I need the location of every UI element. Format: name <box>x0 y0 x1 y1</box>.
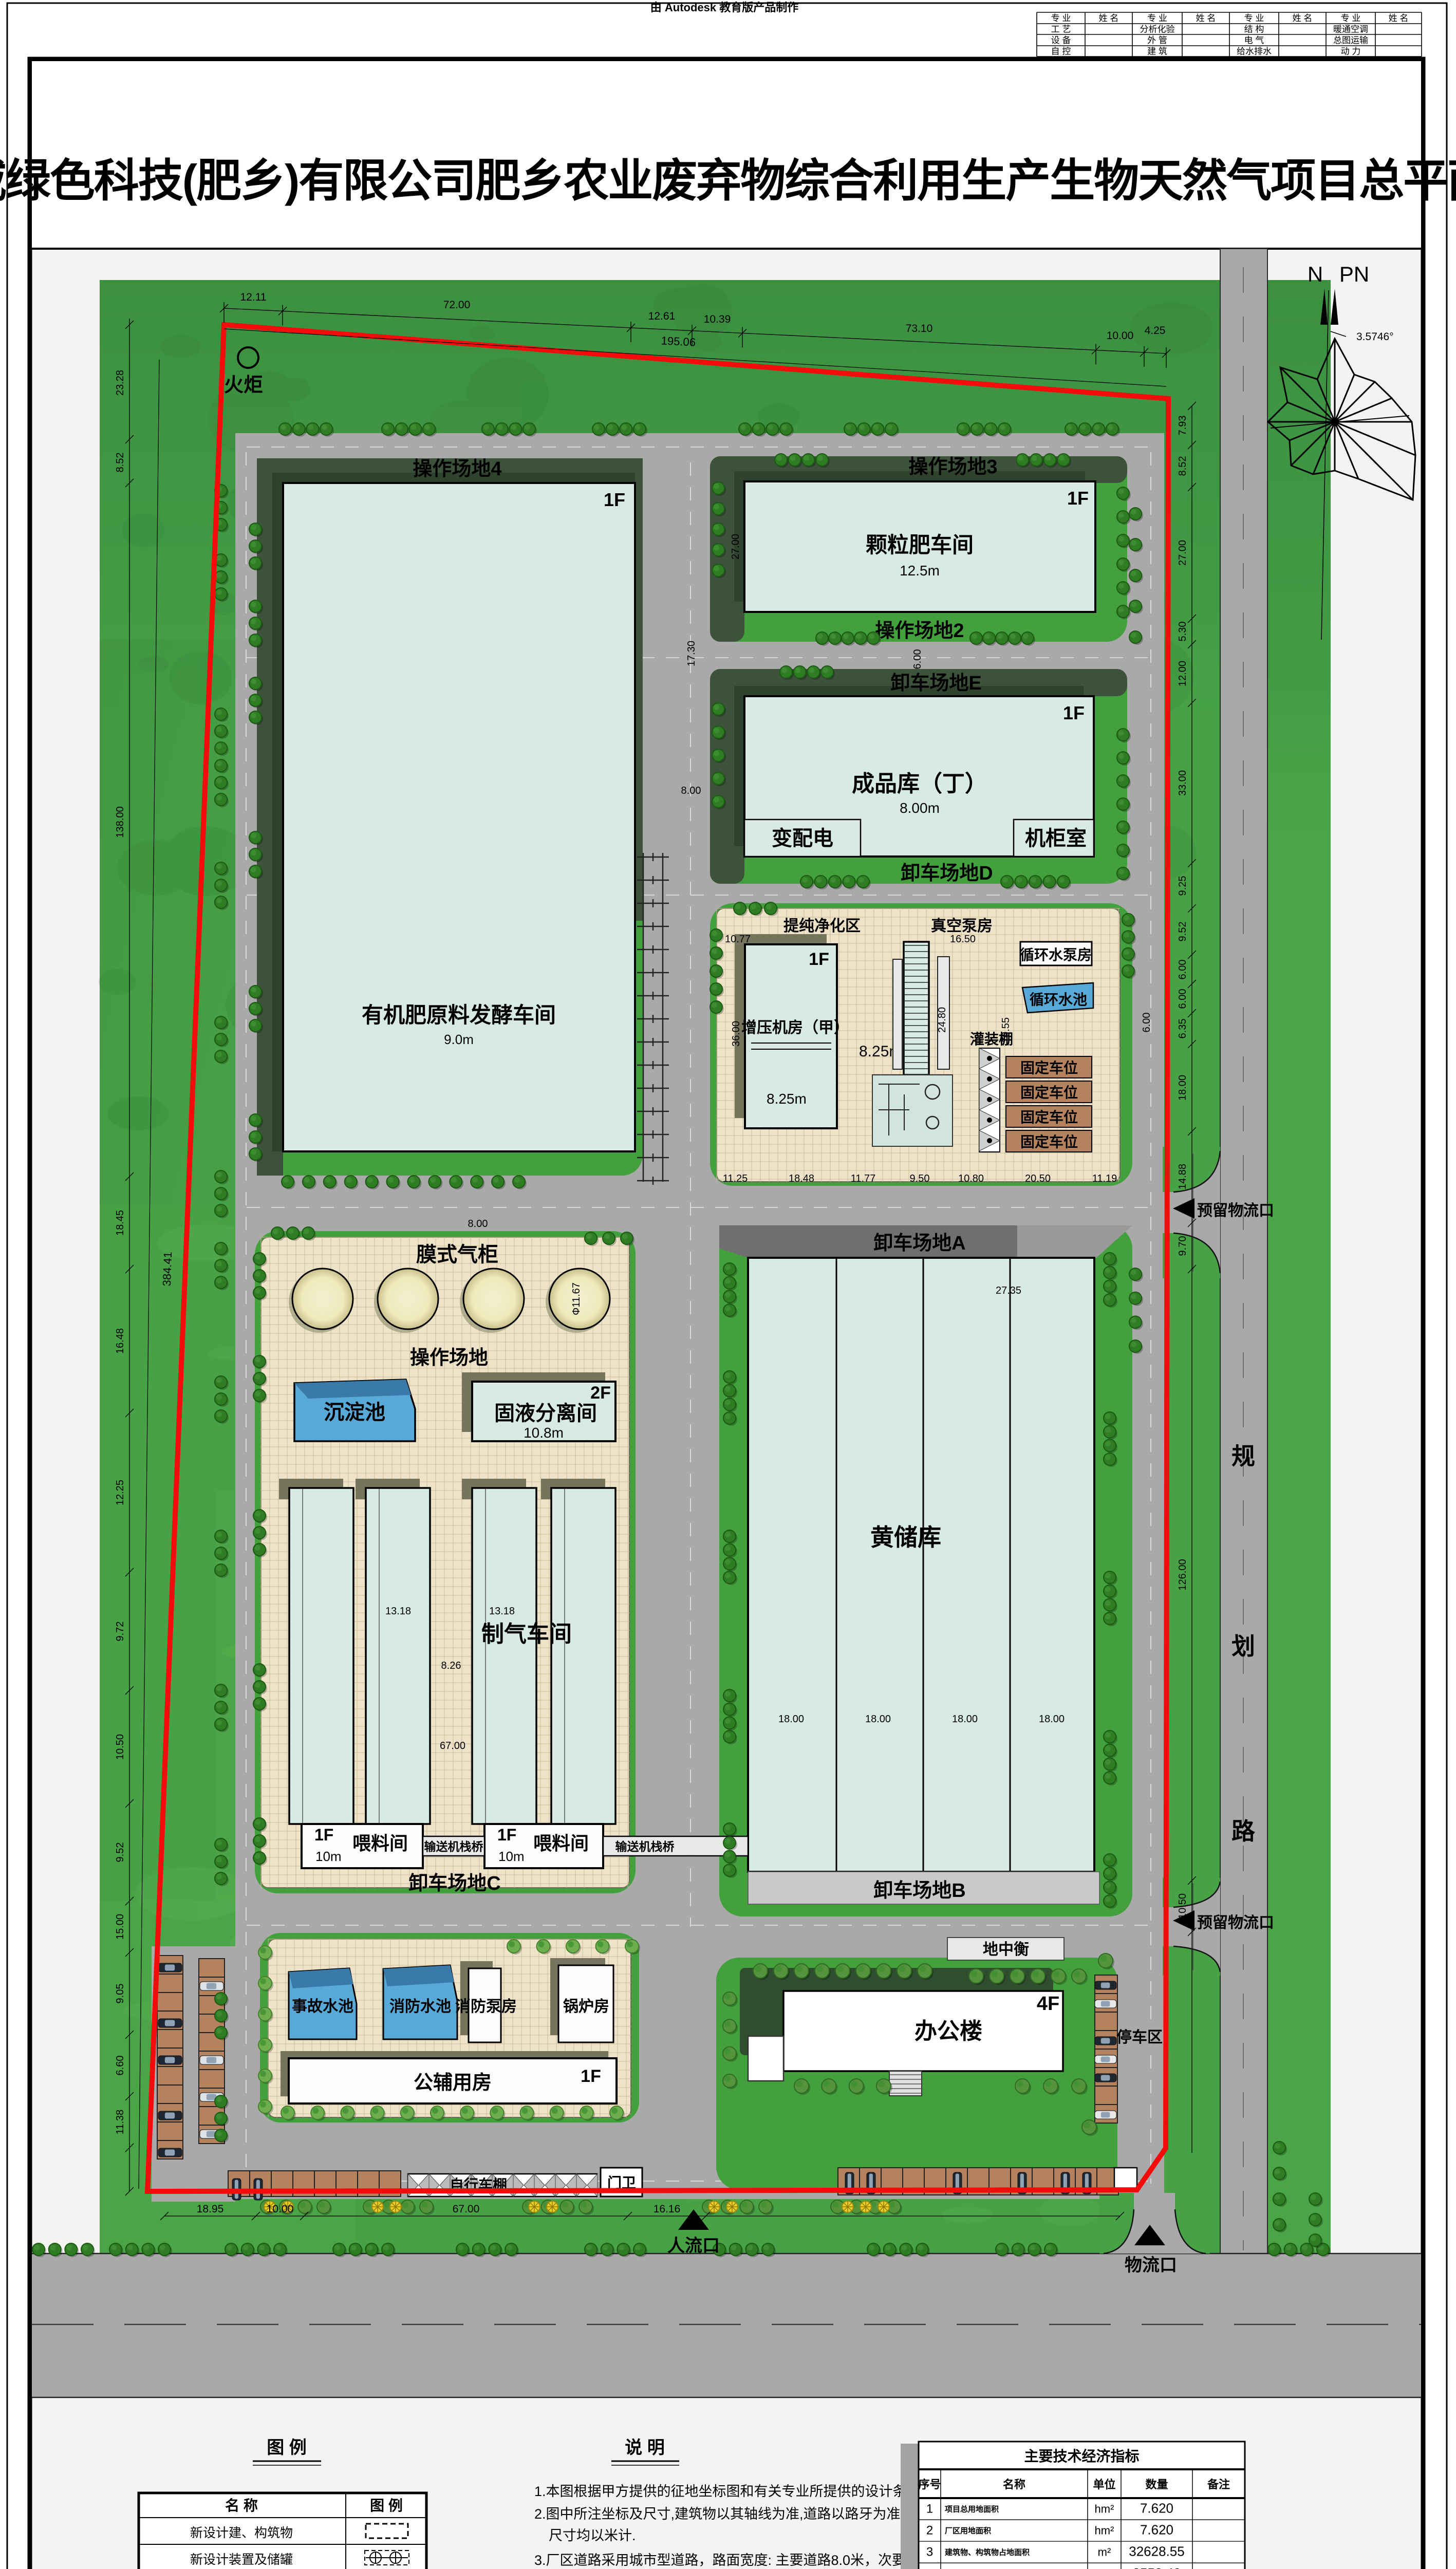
svg-text:m²: m² <box>1098 2546 1111 2559</box>
svg-text:锅炉房: 锅炉房 <box>563 1998 609 2015</box>
svg-text:暖通空调: 暖通空调 <box>1333 25 1368 34</box>
svg-text:序号: 序号 <box>918 2478 941 2491</box>
svg-text:13.18: 13.18 <box>385 1606 411 1617</box>
svg-text:固定车位: 固定车位 <box>1020 1109 1078 1125</box>
svg-text:设 备: 设 备 <box>1051 35 1071 45</box>
svg-text:18.45: 18.45 <box>115 1210 126 1236</box>
svg-text:13.18: 13.18 <box>489 1606 515 1617</box>
svg-text:17.30: 17.30 <box>686 641 697 666</box>
svg-text:16.50: 16.50 <box>950 934 976 945</box>
svg-text:循环水泵房: 循环水泵房 <box>1020 946 1092 963</box>
svg-text:变配电: 变配电 <box>772 827 833 850</box>
svg-text:卸车场地A: 卸车场地A <box>873 1233 965 1254</box>
svg-text:1F: 1F <box>314 1826 333 1844</box>
svg-text:36.00: 36.00 <box>731 1021 742 1047</box>
svg-text:6.35: 6.35 <box>1177 1019 1188 1039</box>
svg-text:卸车场地B: 卸车场地B <box>873 1880 965 1902</box>
svg-text:8.52: 8.52 <box>1177 456 1188 476</box>
svg-text:名 称: 名 称 <box>225 2498 258 2514</box>
svg-text:数量: 数量 <box>1145 2478 1168 2491</box>
svg-text:外 管: 外 管 <box>1147 35 1167 45</box>
svg-text:6.60: 6.60 <box>115 2056 126 2076</box>
svg-text:建筑物、构筑物占地面积: 建筑物、构筑物占地面积 <box>945 2548 1030 2557</box>
svg-text:固液分离间: 固液分离间 <box>494 1402 597 1425</box>
svg-text:hm²: hm² <box>1095 2524 1114 2537</box>
svg-text:10.80: 10.80 <box>958 1173 984 1184</box>
svg-text:停车区: 停车区 <box>1116 2028 1163 2046</box>
svg-text:物流口: 物流口 <box>1125 2256 1177 2275</box>
svg-text:10.00: 10.00 <box>267 2203 294 2215</box>
svg-text:PN: PN <box>1339 262 1369 286</box>
svg-text:5.30: 5.30 <box>1177 622 1188 642</box>
svg-text:12.61: 12.61 <box>648 310 676 322</box>
svg-text:9.70: 9.70 <box>1177 1236 1188 1256</box>
svg-text:N: N <box>1308 262 1323 286</box>
svg-text:操作场地4: 操作场地4 <box>413 458 501 480</box>
svg-text:15.00: 15.00 <box>115 1914 126 1940</box>
svg-text:12.5m: 12.5m <box>900 563 940 579</box>
svg-text:2F: 2F <box>590 1383 611 1403</box>
svg-text:10.39: 10.39 <box>704 313 731 325</box>
svg-text:8.26: 8.26 <box>441 1660 461 1671</box>
svg-text:3553.40: 3553.40 <box>1133 2565 1181 2569</box>
svg-text:19.55: 19.55 <box>1000 1017 1012 1043</box>
svg-text:固定车位: 固定车位 <box>1020 1084 1078 1101</box>
svg-text:制气车间: 制气车间 <box>481 1622 572 1647</box>
svg-text:6.00: 6.00 <box>912 649 923 669</box>
svg-text:消防泵房: 消防泵房 <box>455 1998 517 2015</box>
svg-text:Ф11.67: Ф11.67 <box>571 1282 582 1315</box>
svg-text:1F: 1F <box>581 2067 601 2086</box>
svg-text:10.50: 10.50 <box>1177 1893 1188 1919</box>
svg-text:卸车场地C: 卸车场地C <box>408 1873 500 1894</box>
svg-text:18.95: 18.95 <box>197 2203 224 2215</box>
svg-text:8.00: 8.00 <box>681 785 701 796</box>
svg-text:9.52: 9.52 <box>1177 922 1188 942</box>
svg-text:16.16: 16.16 <box>654 2203 681 2215</box>
svg-text:消防水池: 消防水池 <box>389 1998 451 2015</box>
svg-text:7.93: 7.93 <box>1177 416 1188 436</box>
svg-text:工 艺: 工 艺 <box>1051 25 1071 34</box>
svg-text:11.77: 11.77 <box>851 1173 876 1184</box>
svg-text:姓 名: 姓 名 <box>1389 13 1409 23</box>
svg-text:专 业: 专 业 <box>1341 13 1361 23</box>
svg-text:输送机栈桥: 输送机栈桥 <box>615 1840 675 1853</box>
svg-text:划: 划 <box>1231 1633 1255 1660</box>
svg-text:6.00: 6.00 <box>1177 989 1188 1009</box>
svg-text:动 力: 动 力 <box>1341 47 1361 57</box>
svg-text:1F: 1F <box>1067 488 1089 509</box>
svg-text:8.00: 8.00 <box>468 1218 488 1230</box>
svg-text:说 明: 说 明 <box>625 2438 664 2458</box>
svg-text:项目总用地面积: 项目总用地面积 <box>945 2505 999 2514</box>
svg-text:喂料间: 喂料间 <box>352 1833 408 1854</box>
svg-text:电 气: 电 气 <box>1244 35 1264 45</box>
svg-text:11.25: 11.25 <box>723 1173 748 1184</box>
svg-text:hm²: hm² <box>1095 2503 1114 2516</box>
svg-text:3.5746°: 3.5746° <box>1356 331 1394 343</box>
svg-text:预留物流口: 预留物流口 <box>1197 1914 1274 1931</box>
svg-text:10.00: 10.00 <box>1107 330 1134 342</box>
svg-text:24.80: 24.80 <box>937 1007 948 1033</box>
svg-text:27.00: 27.00 <box>1177 540 1188 566</box>
svg-text:操作场地3: 操作场地3 <box>908 456 997 478</box>
svg-text:路: 路 <box>1231 1818 1256 1845</box>
svg-text:人流口: 人流口 <box>667 2236 720 2256</box>
svg-text:8.00m: 8.00m <box>900 800 940 816</box>
svg-text:操作场地: 操作场地 <box>410 1347 488 1369</box>
svg-text:规: 规 <box>1231 1443 1255 1469</box>
svg-text:成品库（丁）: 成品库（丁） <box>852 771 987 796</box>
svg-text:专 业: 专 业 <box>1244 13 1264 23</box>
svg-text:预留物流口: 预留物流口 <box>1197 1202 1274 1219</box>
svg-text:主要技术经济指标: 主要技术经济指标 <box>1024 2448 1139 2464</box>
svg-text:膜式气柜: 膜式气柜 <box>416 1243 498 1266</box>
svg-text:自 控: 自 控 <box>1051 47 1071 57</box>
svg-text:姓 名: 姓 名 <box>1293 13 1313 23</box>
svg-text:尺寸均以米计.: 尺寸均以米计. <box>549 2528 636 2543</box>
svg-text:图 例: 图 例 <box>370 2498 403 2514</box>
svg-text:16.48: 16.48 <box>115 1328 126 1354</box>
svg-text:给水排水: 给水排水 <box>1237 47 1272 57</box>
svg-text:10m: 10m <box>498 1849 525 1864</box>
svg-text:姓 名: 姓 名 <box>1099 13 1119 23</box>
svg-text:4F: 4F <box>1037 1993 1059 2015</box>
svg-text:机柜室: 机柜室 <box>1025 827 1087 850</box>
svg-text:10.8m: 10.8m <box>524 1425 564 1441</box>
svg-text:循环水池: 循环水池 <box>1030 992 1087 1008</box>
svg-text:9.52: 9.52 <box>115 1842 126 1863</box>
svg-text:姓 名: 姓 名 <box>1196 13 1216 23</box>
svg-text:分析化验: 分析化验 <box>1140 25 1175 34</box>
svg-text:单位: 单位 <box>1093 2478 1115 2491</box>
svg-text:专 业: 专 业 <box>1051 13 1071 23</box>
svg-text:固定车位: 固定车位 <box>1020 1059 1078 1076</box>
svg-text:输送机栈桥: 输送机栈桥 <box>424 1840 484 1853</box>
svg-text:总图运输: 总图运输 <box>1333 35 1368 45</box>
svg-text:6.00: 6.00 <box>1141 1013 1152 1033</box>
svg-text:14.88: 14.88 <box>1177 1164 1188 1189</box>
svg-text:73.10: 73.10 <box>906 323 933 334</box>
svg-text:卸车场地E: 卸车场地E <box>890 673 981 694</box>
svg-text:备注: 备注 <box>1207 2478 1230 2491</box>
svg-text:2: 2 <box>926 2524 933 2538</box>
svg-text:11.19: 11.19 <box>1092 1173 1117 1184</box>
svg-text:27.35: 27.35 <box>996 1285 1021 1296</box>
svg-text:138.00: 138.00 <box>115 806 126 837</box>
svg-text:7.620: 7.620 <box>1140 2522 1173 2538</box>
svg-text:建 筑: 建 筑 <box>1147 47 1167 57</box>
svg-text:7.620: 7.620 <box>1140 2501 1173 2516</box>
svg-text:18.00: 18.00 <box>778 1714 804 1725</box>
svg-text:8.25m: 8.25m <box>767 1091 807 1107</box>
svg-text:3: 3 <box>926 2545 933 2559</box>
svg-text:1F: 1F <box>1063 702 1085 723</box>
svg-text:33.00: 33.00 <box>1177 770 1188 796</box>
svg-text:地中衡: 地中衡 <box>983 1941 1029 1958</box>
svg-text:126.00: 126.00 <box>1177 1559 1188 1590</box>
svg-text:厂区用地面积: 厂区用地面积 <box>945 2526 991 2536</box>
svg-text:新设计装置及储罐: 新设计装置及储罐 <box>190 2553 293 2567</box>
svg-text:增压机房（甲）: 增压机房（甲） <box>741 1019 849 1036</box>
svg-text:名称: 名称 <box>1003 2478 1025 2491</box>
svg-text:卸车场地D: 卸车场地D <box>901 863 993 884</box>
svg-text:结 构: 结 构 <box>1244 25 1264 34</box>
svg-text:图 例: 图 例 <box>267 2438 306 2458</box>
svg-text:67.00: 67.00 <box>440 1740 465 1752</box>
svg-text:颗粒肥车间: 颗粒肥车间 <box>866 533 974 557</box>
svg-text:12.25: 12.25 <box>115 1480 126 1505</box>
svg-text:18.00: 18.00 <box>1177 1075 1188 1101</box>
svg-text:真空泵房: 真空泵房 <box>931 918 993 935</box>
svg-text:8.52: 8.52 <box>115 453 126 473</box>
svg-text:12.00: 12.00 <box>1177 661 1188 686</box>
svg-text:提纯净化区: 提纯净化区 <box>783 917 861 935</box>
svg-text:18.00: 18.00 <box>1039 1714 1065 1725</box>
svg-text:27.00: 27.00 <box>730 534 741 560</box>
svg-text:10m: 10m <box>315 1849 342 1864</box>
svg-text:72.00: 72.00 <box>443 299 471 311</box>
svg-text:专 业: 专 业 <box>1147 13 1167 23</box>
svg-text:11.38: 11.38 <box>115 2110 126 2135</box>
svg-text:操作场地2: 操作场地2 <box>875 620 964 642</box>
svg-text:18.48: 18.48 <box>789 1173 814 1184</box>
svg-text:67.00: 67.00 <box>453 2203 480 2215</box>
svg-text:由 Autodesk 教育版产品制作: 由 Autodesk 教育版产品制作 <box>650 1 798 14</box>
svg-text:18.00: 18.00 <box>865 1714 891 1725</box>
svg-text:事故水池: 事故水池 <box>292 1998 353 2015</box>
svg-text:1F: 1F <box>497 1826 516 1844</box>
svg-text:沉淀池: 沉淀池 <box>324 1401 385 1424</box>
svg-text:公辅用房: 公辅用房 <box>414 2072 492 2094</box>
svg-text:9.05: 9.05 <box>115 1984 126 2004</box>
svg-text:4.25: 4.25 <box>1145 325 1166 337</box>
svg-text:4: 4 <box>926 2567 933 2569</box>
svg-text:中环新威绿色科技(肥乡)有限公司肥乡农业废弃物综合利用生产生: 中环新威绿色科技(肥乡)有限公司肥乡农业废弃物综合利用生产生物天然气项目总平面布… <box>0 155 1456 206</box>
svg-text:喂料间: 喂料间 <box>533 1833 589 1854</box>
svg-text:23.28: 23.28 <box>115 370 126 396</box>
svg-text:新设计建、构筑物: 新设计建、构筑物 <box>190 2526 293 2540</box>
svg-text:黄储库: 黄储库 <box>870 1524 941 1551</box>
svg-text:9.25: 9.25 <box>1177 876 1188 896</box>
svg-text:195.06: 195.06 <box>661 334 696 348</box>
svg-text:9.0m: 9.0m <box>444 1032 474 1047</box>
svg-text:办公楼: 办公楼 <box>914 2019 982 2044</box>
svg-text:1F: 1F <box>809 950 829 969</box>
svg-text:固定车位: 固定车位 <box>1020 1133 1078 1150</box>
svg-text:1: 1 <box>926 2502 933 2516</box>
svg-text:384.41: 384.41 <box>160 1252 174 1287</box>
svg-text:32628.55: 32628.55 <box>1129 2544 1184 2559</box>
svg-text:6.00: 6.00 <box>1177 960 1188 980</box>
svg-text:1F: 1F <box>604 489 625 510</box>
svg-text:10.77: 10.77 <box>725 934 751 945</box>
svg-text:18.00: 18.00 <box>952 1714 978 1725</box>
svg-text:12.11: 12.11 <box>240 291 267 303</box>
svg-text:20.50: 20.50 <box>1025 1173 1051 1184</box>
svg-text:10.50: 10.50 <box>115 1734 126 1760</box>
svg-text:9.72: 9.72 <box>115 1622 126 1642</box>
svg-text:有机肥原料发酵车间: 有机肥原料发酵车间 <box>362 1003 556 1027</box>
svg-text:9.50: 9.50 <box>910 1173 930 1184</box>
svg-text:火炬: 火炬 <box>224 375 263 396</box>
